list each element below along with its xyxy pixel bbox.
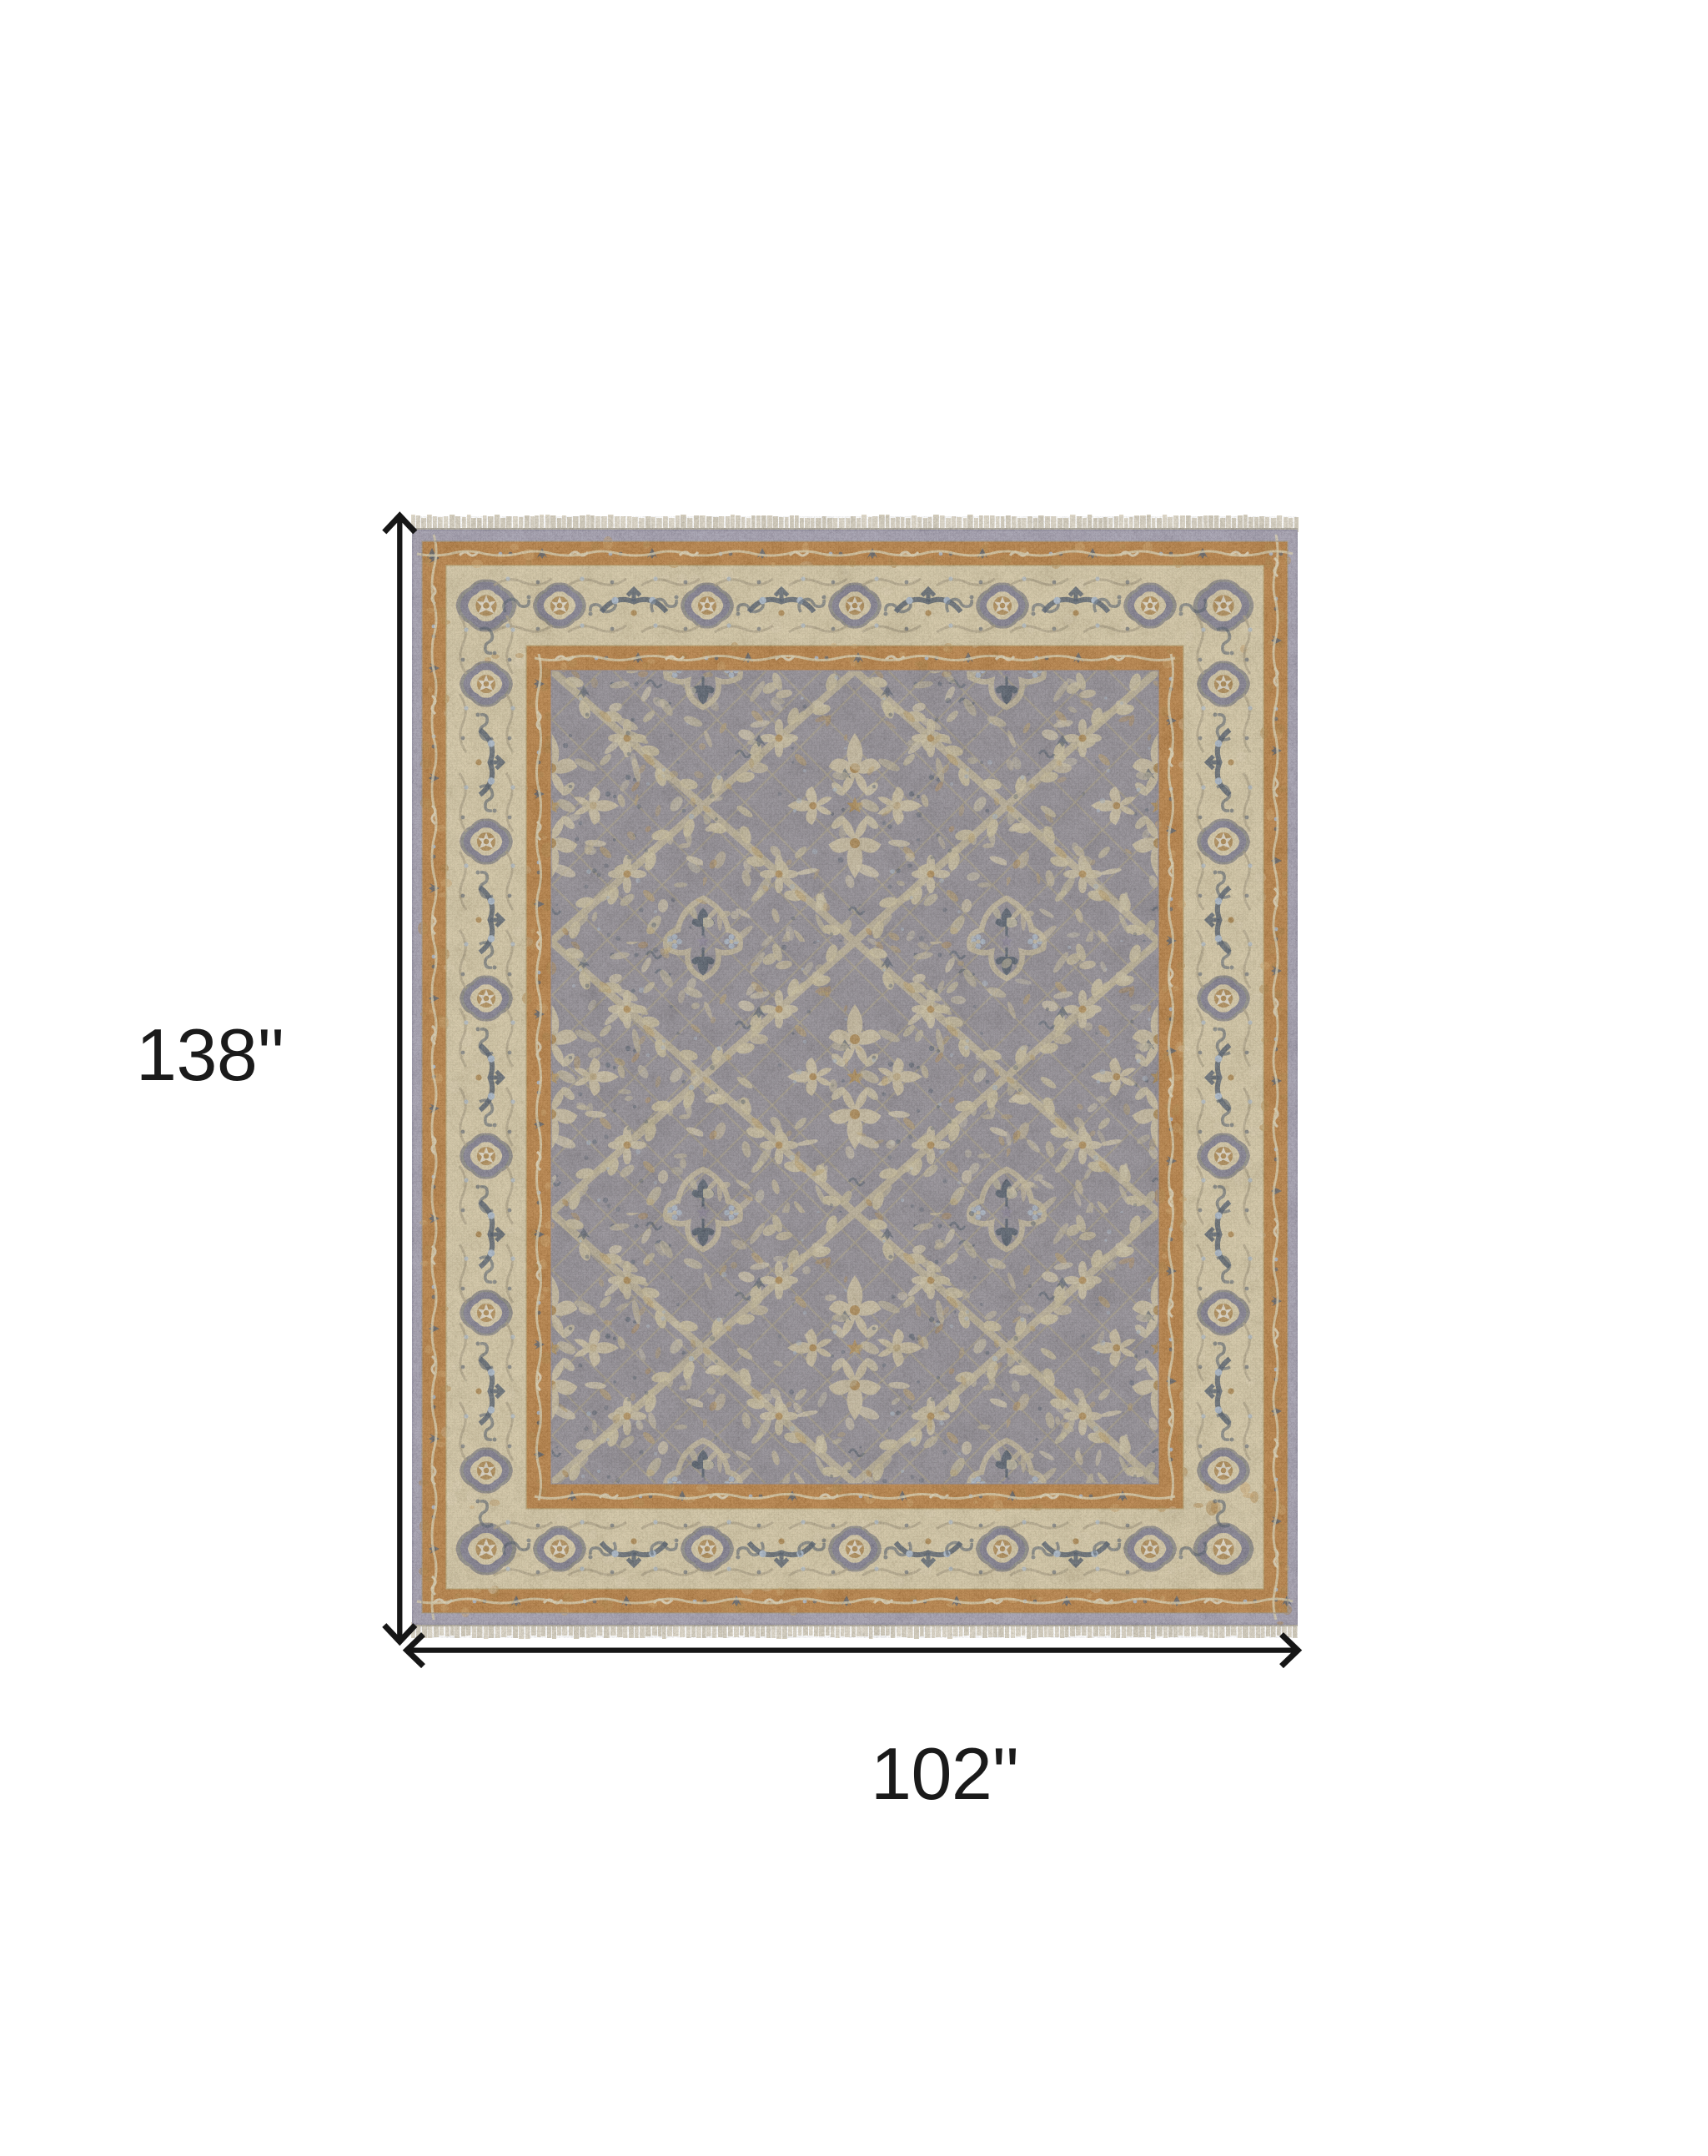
svg-text:102'': 102'' [871,1732,1019,1815]
svg-text:138'': 138'' [136,1013,284,1096]
